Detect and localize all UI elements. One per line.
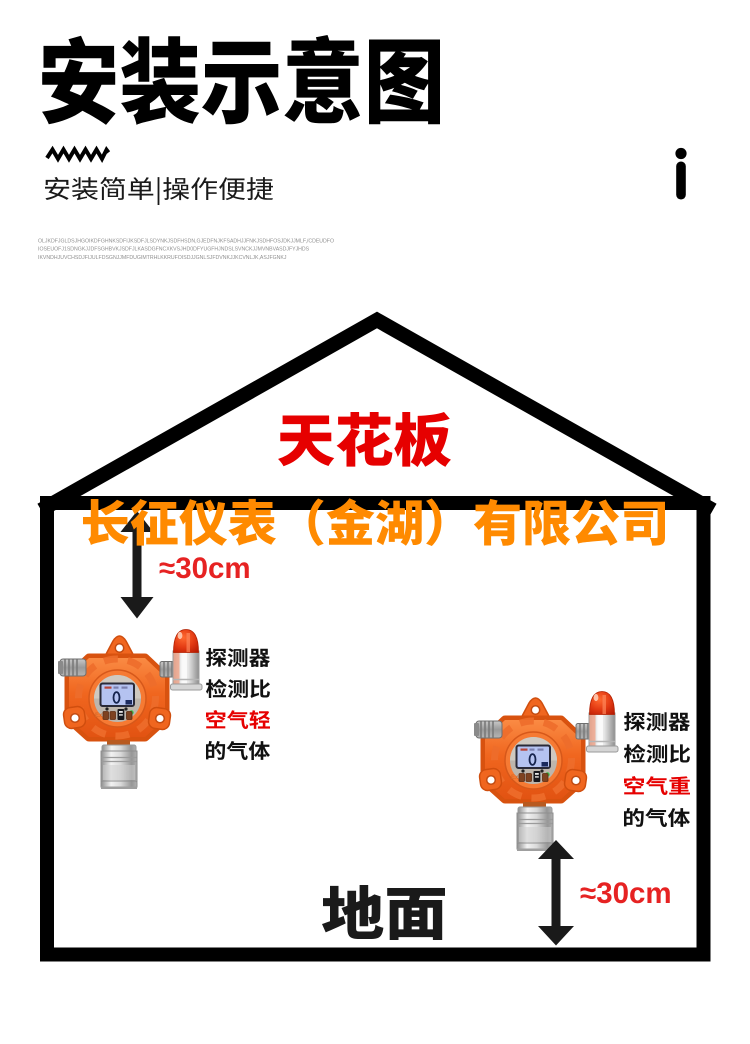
svg-text:Ex: Ex: [95, 713, 103, 719]
svg-text:≈30cm: ≈30cm: [580, 877, 672, 910]
svg-text:IKVNDHJUVCHSDJFIJULFDSGNJJMFDU: IKVNDHJUVCHSDJFIJULFDSGNJJMFDUGIMTRHLKKR…: [38, 255, 287, 261]
svg-text:OLJKDFJGLDSJHGOIKDFGHNKSDFIJKS: OLJKDFJGLDSJHGOIKDFGHNKSDFIJKSDFJLSDYNKJ…: [38, 239, 334, 245]
svg-text:≈30cm: ≈30cm: [159, 552, 251, 585]
svg-text:IOSEUOFJ1SDNGKJJDFSGHBVKJSDFJL: IOSEUOFJ1SDNGKJJDFSGHBVKJSDFJLKASDGFNCXK…: [38, 247, 310, 253]
svg-text:Ex: Ex: [511, 775, 519, 781]
